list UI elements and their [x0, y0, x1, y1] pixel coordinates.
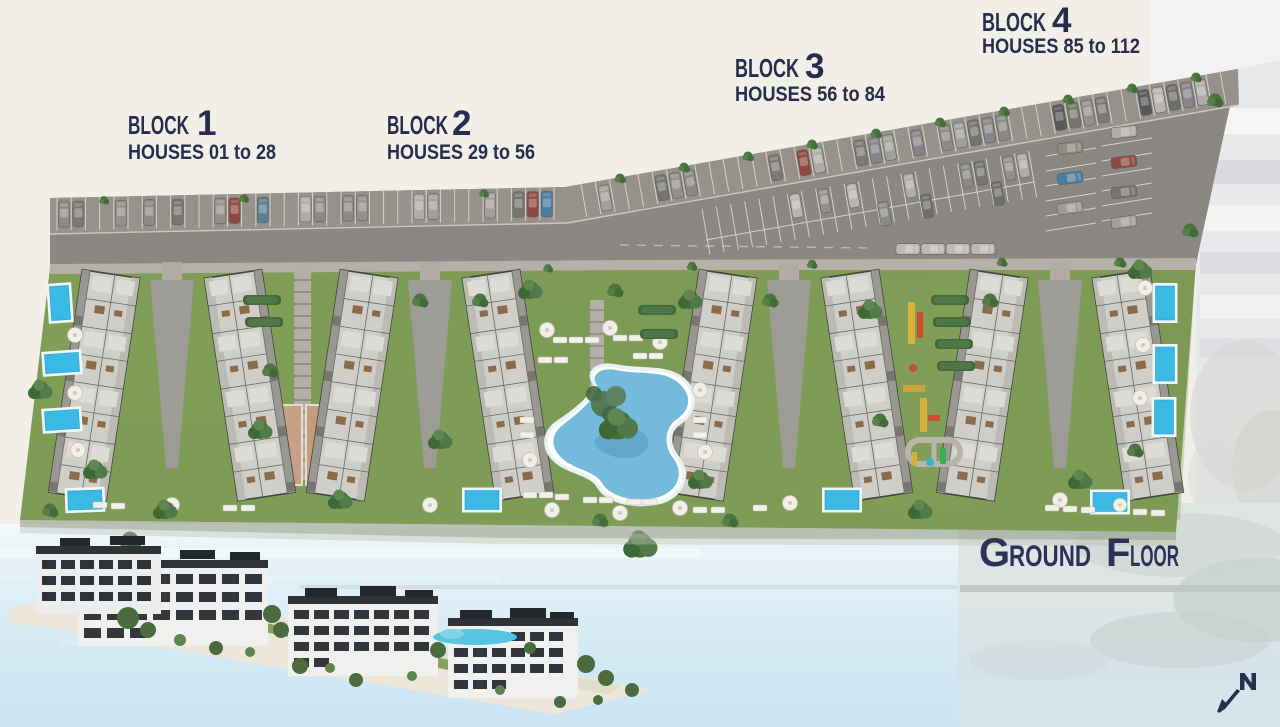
- svg-text:BLOCK: BLOCK: [735, 53, 799, 83]
- svg-text:1: 1: [197, 104, 216, 143]
- svg-text:ROUND: ROUND: [1009, 540, 1091, 573]
- svg-text:BLOCK: BLOCK: [982, 7, 1046, 37]
- svg-text:HOUSES 85 to 112: HOUSES 85 to 112: [982, 35, 1140, 58]
- svg-text:LOOR: LOOR: [1130, 540, 1179, 573]
- svg-text:3: 3: [805, 47, 824, 86]
- svg-text:BLOCK: BLOCK: [387, 110, 448, 140]
- svg-text:HOUSES 29 to 56: HOUSES 29 to 56: [387, 141, 535, 164]
- svg-text:F: F: [1106, 531, 1130, 575]
- svg-text:2: 2: [452, 104, 471, 143]
- svg-text:G: G: [979, 531, 1010, 575]
- svg-text:HOUSES 01 to 28: HOUSES 01 to 28: [128, 141, 276, 164]
- svg-text:HOUSES 56 to 84: HOUSES 56 to 84: [735, 83, 885, 106]
- svg-text:BLOCK: BLOCK: [128, 110, 189, 140]
